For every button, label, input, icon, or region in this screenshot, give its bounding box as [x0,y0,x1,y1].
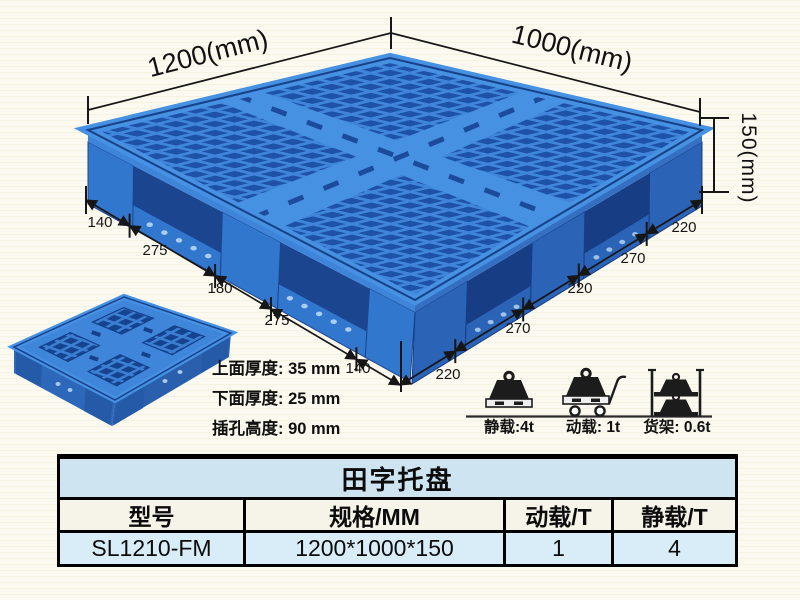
cell-model: SL1210-FM [60,533,246,564]
rack-load-label: 货架: 0.6t [643,417,710,436]
cell-spec: 1200*1000*150 [246,533,506,564]
dim-segment-label: 275 [142,242,167,259]
dim-segment-label: 220 [567,280,592,297]
load-rating-icons: 静载:4t 动载: 1t 货架: 0.6t [466,369,712,436]
product-spec-sheet: 1200(mm) 1000(mm) 150(mm) 140 275 180 27… [0,0,800,600]
dim-segment-label: 270 [505,320,530,337]
dim-segment-label: 220 [671,219,696,236]
dim-segment-label: 140 [345,360,370,377]
pallet-bottom-view [14,297,231,426]
dim-segment-label: 270 [620,250,645,267]
col-header-dynamic-load: 动载/T [506,500,614,533]
dim-height-label: 150(mm) [737,112,760,203]
static-load-label: 静载:4t [484,417,534,436]
dynamic-load-label: 动载: 1t [566,418,620,436]
static-load-icon [486,372,532,407]
dynamic-load-icon [563,369,626,415]
dim-segment-label: 275 [264,312,289,329]
spec-table: 田字托盘 型号 规格/MM 动载/T 静载/T SL1210-FM 1200*1… [57,454,738,567]
col-header-model: 型号 [60,500,246,533]
dim-segment-label: 140 [87,214,112,231]
note-slot-height: 插孔高度: 90 mm [212,414,340,444]
cell-dynamic-load: 1 [506,533,614,564]
col-header-static-load: 静载/T [614,500,735,533]
col-header-spec: 规格/MM [246,500,506,533]
rack-load-icon [648,370,704,417]
dim-segment-label: 220 [435,366,460,383]
note-bottom-thickness: 下面厚度: 25 mm [212,384,340,414]
note-top-thickness: 上面厚度: 35 mm [212,354,340,384]
dim-segment-label: 180 [207,280,232,297]
spec-table-title: 田字托盘 [60,459,735,500]
thickness-notes: 上面厚度: 35 mm 下面厚度: 25 mm 插孔高度: 90 mm [212,354,340,444]
dim-length-label: 1200(mm) [144,24,271,83]
dim-width-label: 1000(mm) [509,19,636,78]
cell-static-load: 4 [614,533,735,564]
